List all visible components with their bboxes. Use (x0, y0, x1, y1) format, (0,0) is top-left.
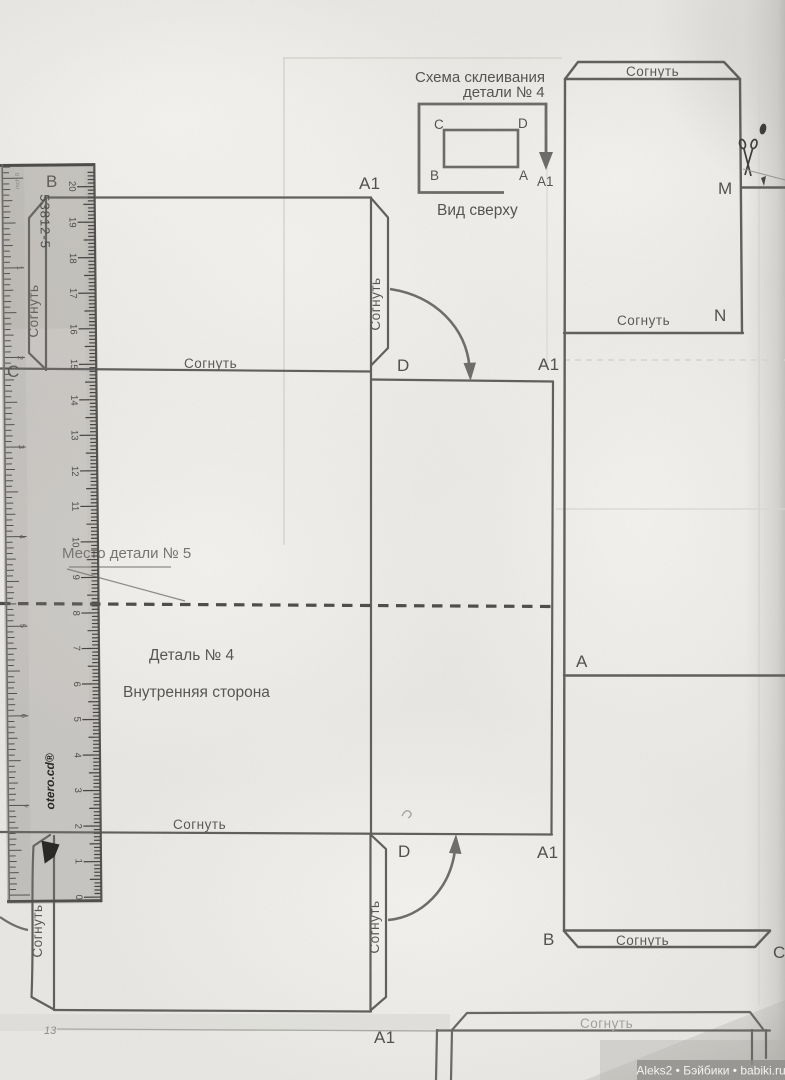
svg-text:Aleks2 • Бэйбики • babiki.ru: Aleks2 • Бэйбики • babiki.ru (636, 1064, 785, 1078)
